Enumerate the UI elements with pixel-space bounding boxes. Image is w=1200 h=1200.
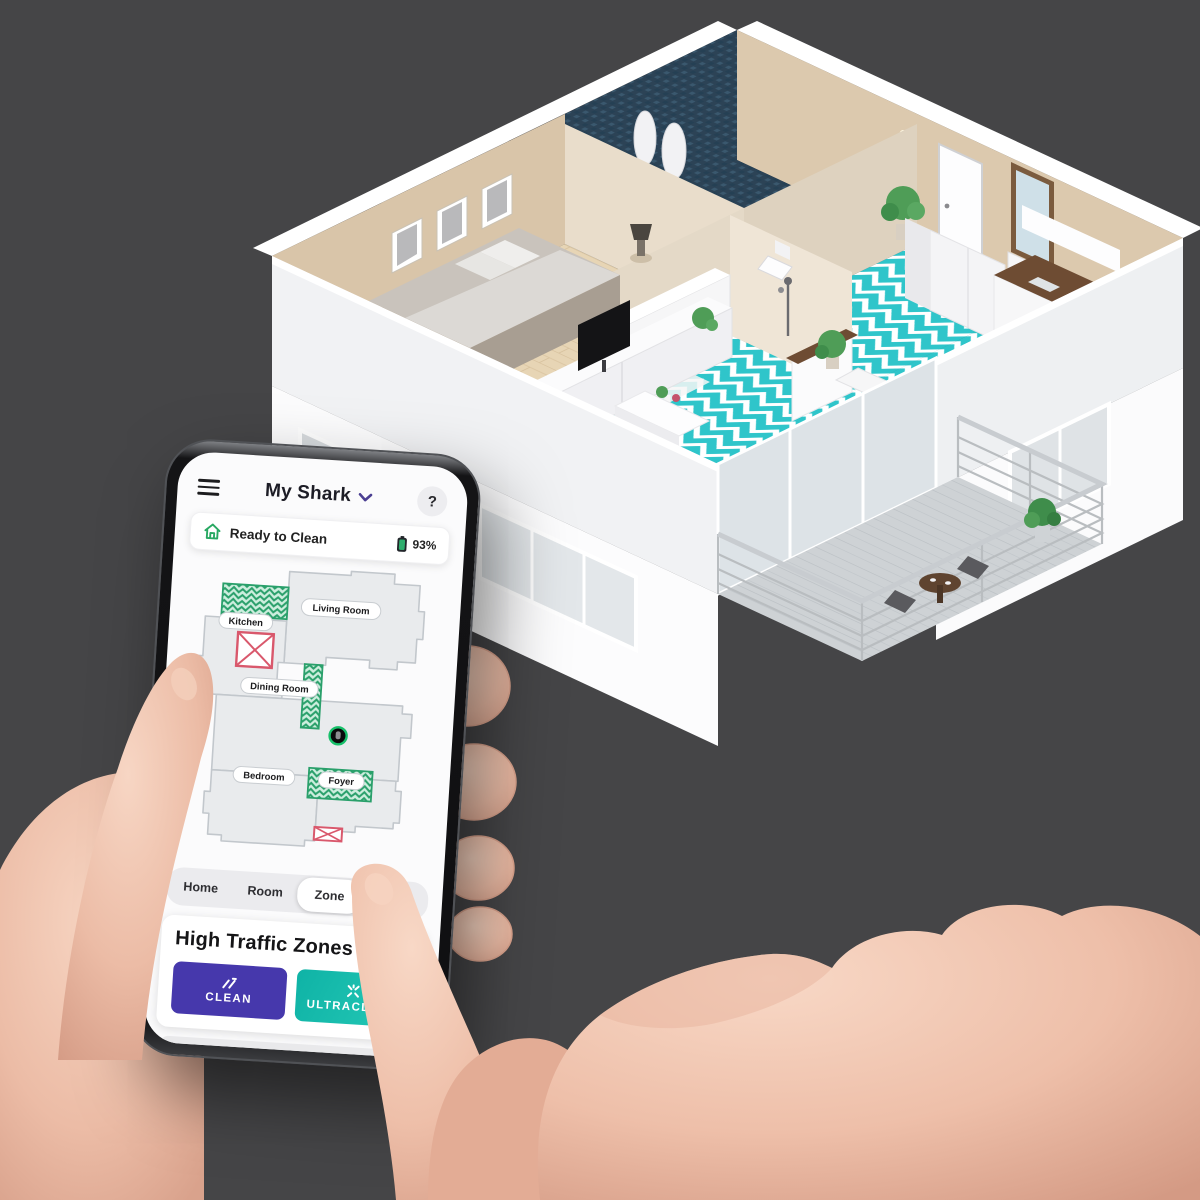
bedroom-living-wall xyxy=(602,208,744,397)
house-backleft-rim xyxy=(253,21,737,256)
bedroom-floor xyxy=(290,244,744,462)
kitchen-windows xyxy=(1010,404,1109,532)
palm-shading xyxy=(600,954,832,1028)
bath-robes xyxy=(634,111,686,179)
living-floor xyxy=(470,335,979,577)
ultraclean-burst-icon xyxy=(345,983,362,998)
map-room-living[interactable] xyxy=(284,568,427,672)
tab-home[interactable]: Home xyxy=(168,869,235,907)
kitchen-tall-cabinet xyxy=(1118,300,1155,380)
no-go-zone[interactable] xyxy=(236,632,274,668)
ultraclean-button[interactable]: ULTRACLEAN xyxy=(294,969,411,1028)
floor-map[interactable]: Living Room Kitchen Dining Room Bedroom … xyxy=(154,556,463,882)
help-button[interactable]: ? xyxy=(416,485,448,517)
bedroom-dresser xyxy=(587,268,730,397)
kitchen-counter xyxy=(994,205,1155,385)
bed xyxy=(369,228,620,390)
tv xyxy=(578,300,630,371)
battery-icon xyxy=(396,535,408,553)
app-title: My Shark xyxy=(264,480,351,507)
balcony-glass-doors xyxy=(718,358,936,594)
kitchen-floor xyxy=(792,301,1166,480)
wall-sconce xyxy=(898,130,908,150)
desk-and-chair xyxy=(836,368,902,410)
bedside-lamp xyxy=(630,224,652,263)
high-traffic-zones-card: High Traffic Zones CLEAN xyxy=(156,914,429,1042)
toilet xyxy=(758,240,792,280)
tv-sideboard xyxy=(498,297,732,460)
kitchen-peninsula xyxy=(792,332,852,421)
coat-stand xyxy=(778,277,792,336)
svg-text:Kitchen: Kitchen xyxy=(228,615,263,628)
entry-floor xyxy=(730,244,1039,392)
clean-button[interactable]: CLEAN xyxy=(171,961,288,1020)
chevron-down-icon xyxy=(358,492,373,502)
frontright-wall-inner xyxy=(936,238,1183,488)
bedroom-rug xyxy=(470,340,710,458)
tab-room[interactable]: Room xyxy=(232,873,299,911)
phone-screen: My Shark ? Ready to Clean 93% xyxy=(143,450,470,1059)
bath-entry-wall xyxy=(744,124,917,328)
door-handle xyxy=(945,204,950,209)
battery-percent: 93% xyxy=(412,537,437,552)
balcony-table-set xyxy=(884,556,989,613)
robot-icon[interactable] xyxy=(329,727,347,745)
house-backright-rim xyxy=(737,21,1200,238)
status-text: Ready to Clean xyxy=(229,525,389,550)
smartphone: My Shark ? Ready to Clean 93% xyxy=(129,437,483,1074)
tab-spot[interactable]: Spot xyxy=(361,881,428,919)
bath-bedroom-wall xyxy=(565,124,744,328)
svg-text:Foyer: Foyer xyxy=(328,774,355,787)
entry-plant xyxy=(881,186,925,240)
device-selector[interactable]: My Shark xyxy=(264,480,372,509)
home-icon xyxy=(202,522,222,541)
coffee-table xyxy=(615,386,709,450)
balcony-deck xyxy=(718,477,1102,661)
right-palm xyxy=(538,905,1200,1200)
front-door xyxy=(939,144,982,264)
wardrobe xyxy=(905,218,1005,345)
bathroom-floor xyxy=(565,160,917,328)
label-bedroom: Bedroom xyxy=(233,766,295,786)
label-kitchen: Kitchen xyxy=(219,612,274,631)
picture-frames xyxy=(392,174,512,273)
frontright-wall-exterior xyxy=(936,368,1183,640)
kitchen-upper-cabinets xyxy=(1022,205,1120,273)
entry-wall xyxy=(737,30,1183,368)
bedroom-wall xyxy=(272,114,565,386)
no-go-zone-small[interactable] xyxy=(314,827,343,842)
living-plants xyxy=(692,307,846,369)
bathroom-wall xyxy=(565,30,737,244)
tab-zone[interactable]: Zone xyxy=(296,877,363,915)
card-heading: High Traffic Zones xyxy=(175,927,414,965)
menu-icon[interactable] xyxy=(197,479,220,496)
living-sliding-window xyxy=(480,505,636,650)
entry-living-wall xyxy=(730,215,852,392)
clean-hatch-icon xyxy=(220,976,239,990)
label-foyer: Foyer xyxy=(318,771,365,790)
balcony-railing xyxy=(718,417,1102,661)
balcony-plant xyxy=(1024,498,1061,542)
curled-finger xyxy=(428,1038,593,1200)
entry-console xyxy=(1008,252,1052,292)
entry-mirror xyxy=(1011,162,1054,272)
